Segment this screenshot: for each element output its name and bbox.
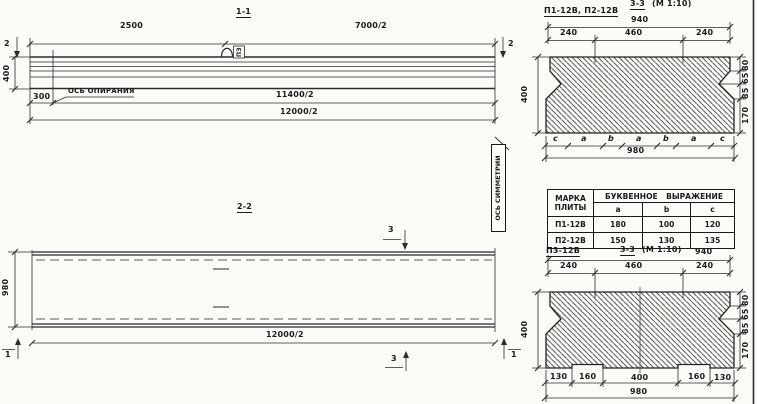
table-row: П1-12В 180 100 120 [548,217,735,233]
lifting-loop-tag: ПЗ [236,47,243,57]
cut-mark-1-right: 1 [511,351,517,359]
table-header-mark-line1: МАРКА [548,194,593,203]
section-top-label: П1-12В, П2-12В [544,7,618,17]
drawing-sheet: 1-1 2500 7000/2 2 2 400 300 ОСЬ ОПИРАНИЯ… [0,0,757,404]
dim-240-right-bottom: 240 [696,262,713,270]
dim-940-top: 940 [631,16,648,24]
table-col-c: c [691,203,735,217]
view-2-2-title: 2-2 [237,203,252,213]
dim-85-top: 85 [742,87,750,99]
table-cell-c-1: 120 [691,217,735,233]
bearing-axis-label: ОСЬ ОПИРАНИЯ [68,88,135,95]
dim-160-left: 160 [579,373,596,381]
cut-mark-3-bottom: 3 [391,355,397,363]
section-bottom-title: 3-3 [620,246,635,256]
dim-80-top: 80 [742,59,750,71]
dim-7000-2: 7000/2 [355,22,387,30]
table-cell-a-1: 180 [594,217,643,233]
view-1-1-title: 1-1 [236,8,251,18]
dim-300: 300 [33,93,50,101]
dim-170-bottom: 170 [742,342,750,359]
section-bottom-scale: (М 1:10) [642,246,682,254]
view-2-2-linework [2,230,521,371]
symmetry-axis-label: ОСЬ СИММЕТРИИ [491,144,506,232]
letter-dim-a1: a [581,135,587,143]
dim-65-bottom: 65 [742,308,750,320]
section-bottom-label: П3-12В [546,247,580,257]
table-col-a: a [594,203,643,217]
letter-dim-a3: a [691,135,697,143]
dim-11400-2: 11400/2 [276,91,314,99]
cut-mark-1-left: 1 [5,351,11,359]
dim-240-right-top: 240 [696,29,713,37]
table-header-mark: МАРКА ПЛИТЫ [548,190,594,217]
letter-dim-c2: c [720,135,725,143]
dim-400-view-1-1: 400 [3,65,11,82]
dim-460-bottom: 460 [625,262,642,270]
section-top-title: 3-3 [630,0,645,10]
dim-400-bottom-mid: 400 [631,374,648,382]
table-cell-a-2: 150 [594,233,643,249]
dim-85-bottom: 85 [742,322,750,334]
cut-mark-2-left: 2 [4,40,10,48]
dim-980-bottom: 980 [630,388,647,396]
table-header-span: БУКВЕННОЕ ВЫРАЖЕНИЕ [594,190,735,203]
letter-dim-b2: b [663,135,669,143]
dim-460-top: 460 [625,29,642,37]
dim-130-right: 130 [714,374,731,382]
dim-980-view-2-2: 980 [2,279,10,296]
letter-dim-c1: c [553,135,558,143]
letter-dim-b1: b [608,135,614,143]
table-col-b: b [643,203,691,217]
dim-240-left-top: 240 [560,29,577,37]
dim-80-bottom: 80 [742,294,750,306]
dim-12000-2-view-2-2: 12000/2 [266,331,304,339]
section-top-scale: (М 1:10) [652,0,692,8]
dim-240-left-bottom: 240 [560,262,577,270]
plate-parameters-table: МАРКА ПЛИТЫ БУКВЕННОЕ ВЫРАЖЕНИЕ a b c П1… [547,189,735,249]
dim-130-left: 130 [550,373,567,381]
table-header-mark-line2: ПЛИТЫ [548,203,593,212]
dim-980-top: 980 [627,147,644,155]
dim-65-top: 65 [742,72,750,84]
dim-940-bottom: 940 [695,248,712,256]
cut-mark-3-top: 3 [388,226,394,234]
table-cell-mark-1: П1-12В [548,217,594,233]
dim-160-right: 160 [688,373,705,381]
dim-400-section-bottom: 400 [521,321,529,338]
dim-12000-2-view-1-1: 12000/2 [280,108,318,116]
letter-dim-a2: a [636,135,642,143]
table-cell-b-1: 100 [643,217,691,233]
dim-400-section-top: 400 [521,86,529,103]
view-1-1-linework [9,37,506,124]
dim-170-top: 170 [742,107,750,124]
dim-2500: 2500 [120,22,143,30]
cut-mark-2-right: 2 [508,40,514,48]
